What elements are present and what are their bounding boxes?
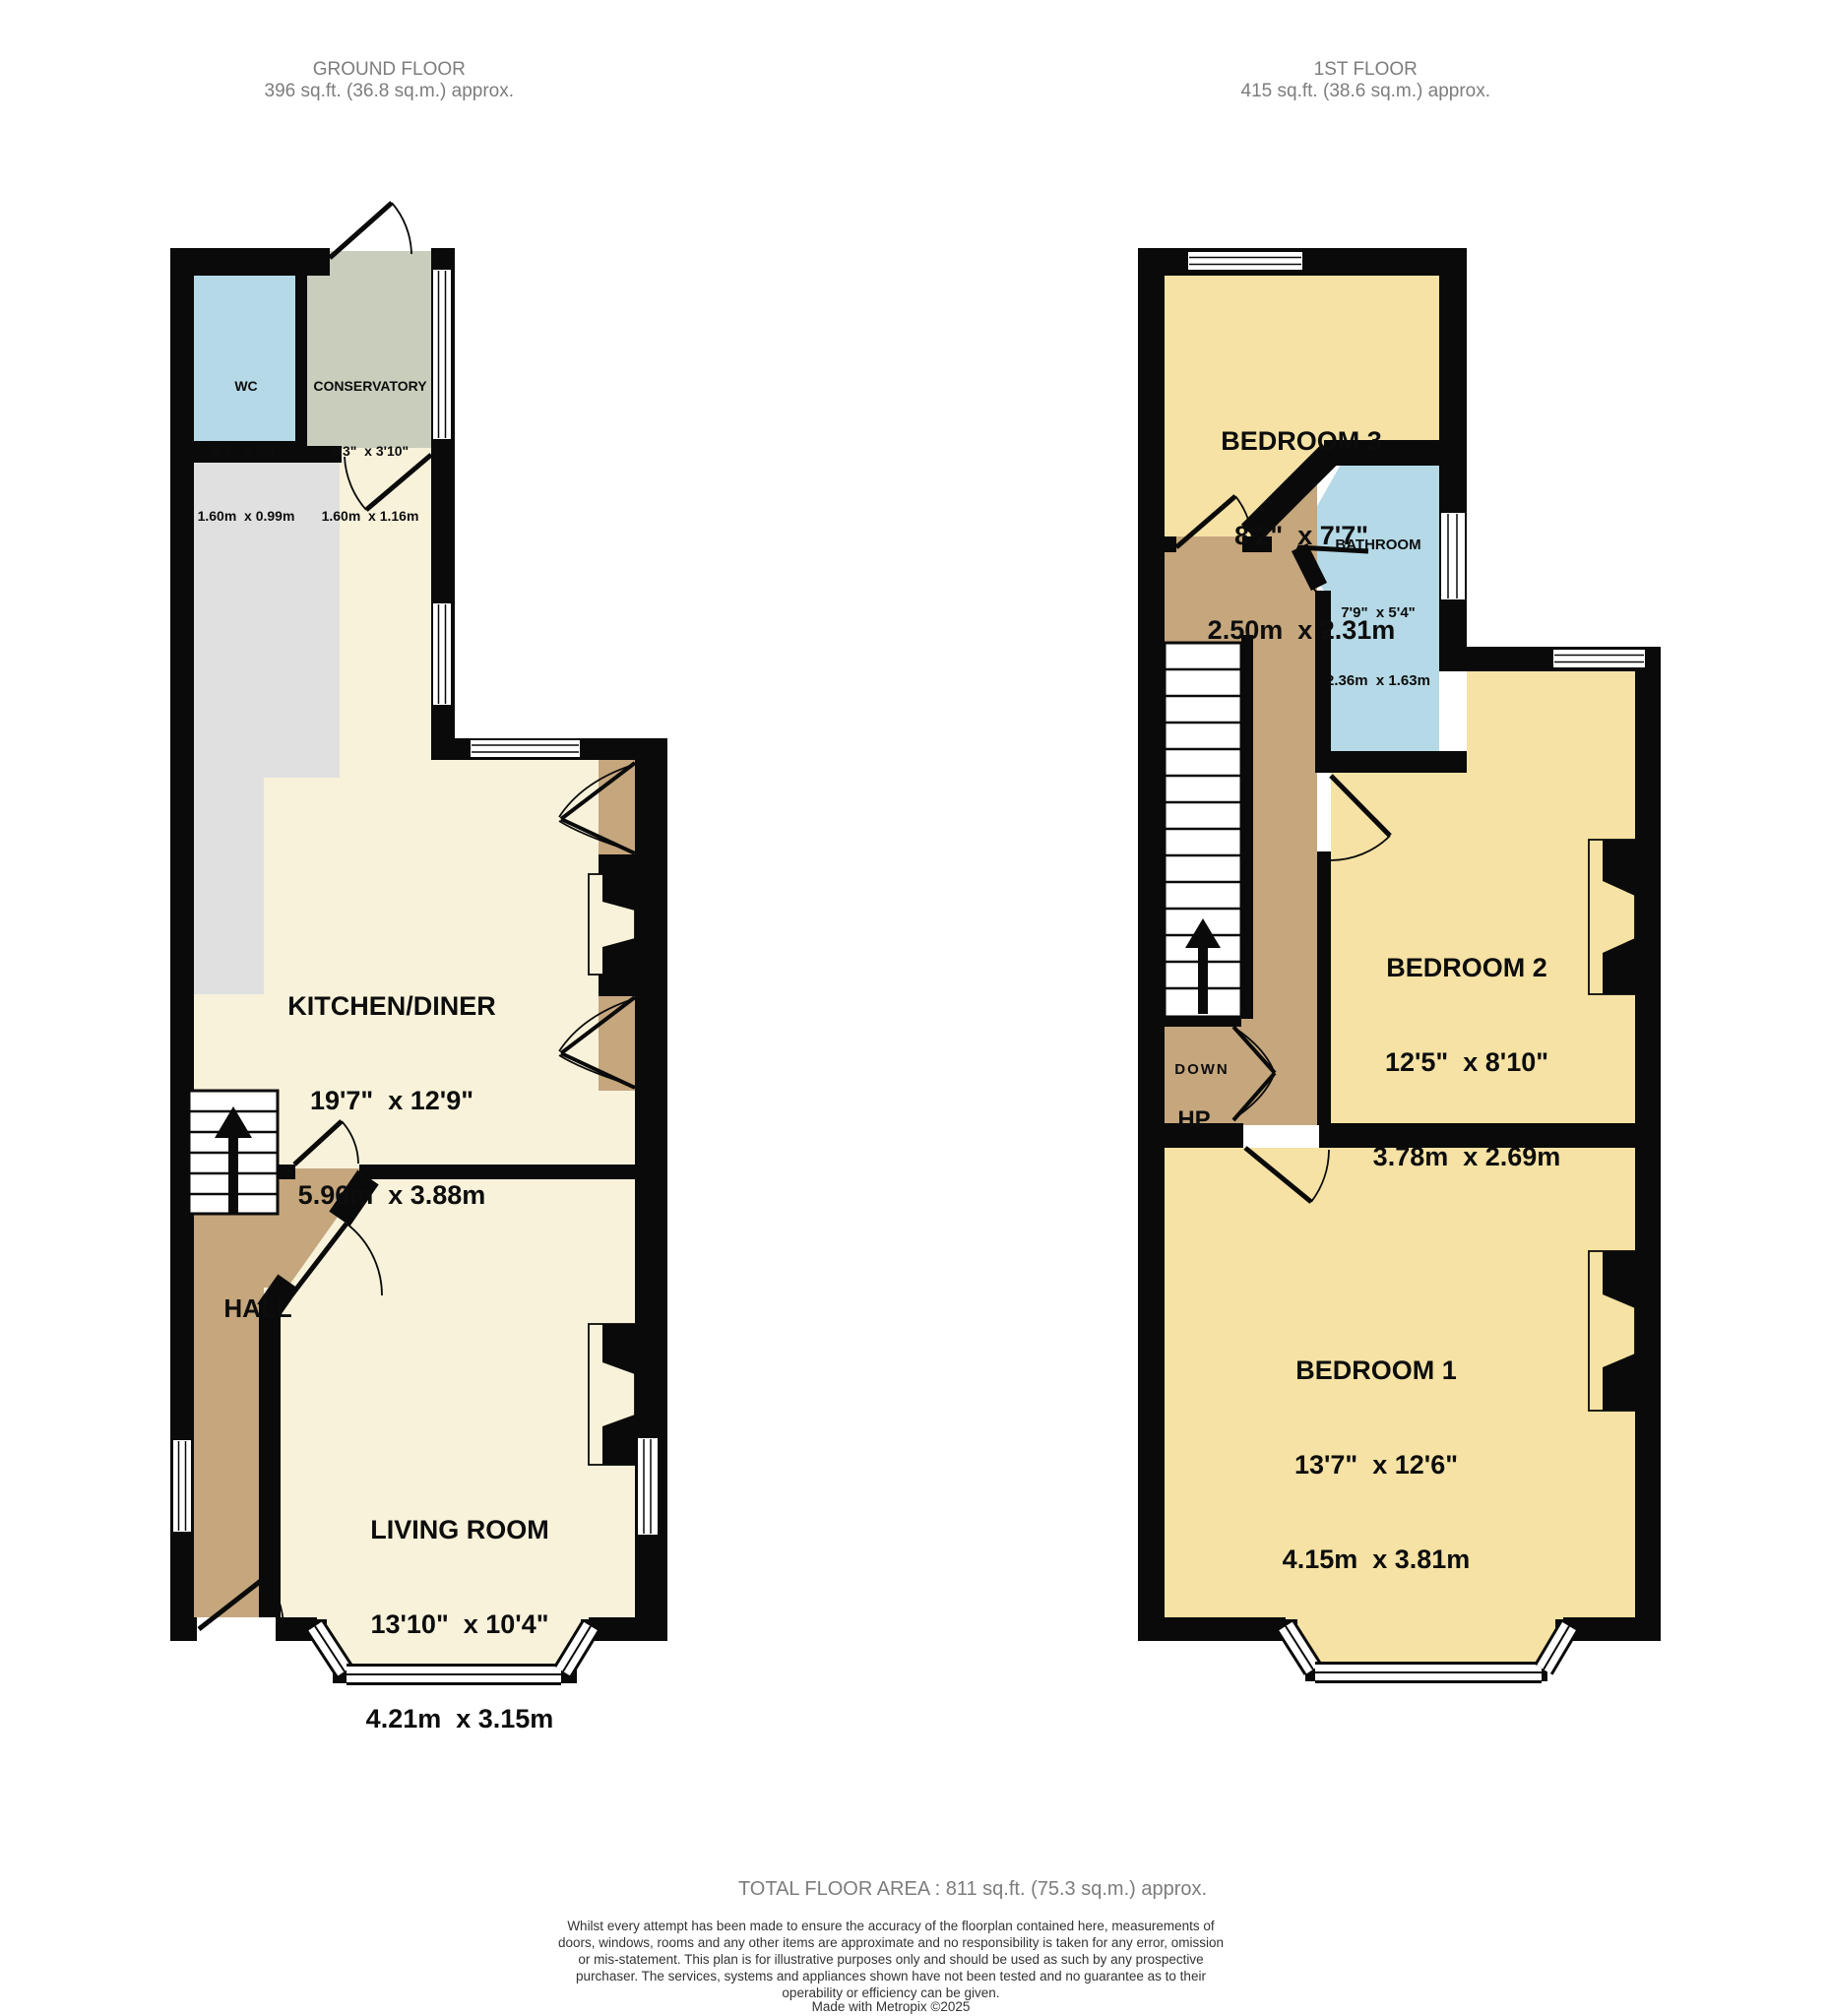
kitchen-diner-label: KITCHEN/DINER 19'7" x 12'9" 5.96m x 3.88… [287, 927, 496, 1242]
living-room-label: LIVING ROOM 13'10" x 10'4" 4.21m x 3.15m [366, 1451, 554, 1766]
kitchen-chimney-breast [589, 874, 635, 975]
first-floor-area: 415 sq.ft. (38.6 sq.m.) approx. [1241, 81, 1490, 101]
bedroom3-window [1187, 251, 1303, 271]
living-side-window [637, 1437, 659, 1536]
first-stairs [1165, 643, 1241, 1017]
bathroom-window [1440, 512, 1466, 600]
hall-label: HALL [223, 1232, 291, 1354]
kitchen-top-window [470, 739, 581, 758]
bedroom1-bay-floor [1286, 1617, 1563, 1669]
ground-floor-header: GROUND FLOOR 396 sq.ft. (36.8 sq.m.) app… [254, 37, 514, 102]
wc-label: WC 5'3" x 3'3" 1.60m x 0.99m [198, 332, 295, 548]
floorplan-page: GROUND FLOOR 396 sq.ft. (36.8 sq.m.) app… [0, 0, 1829, 2016]
conservatory-exterior-door [330, 203, 411, 258]
ground-floor-title: GROUND FLOOR [313, 59, 466, 80]
hall-side-window [172, 1439, 192, 1533]
bedroom2-chimney-breast [1589, 840, 1635, 994]
living-chimney-breast [589, 1324, 635, 1465]
conservatory-label: CONSERVATORY 5'3" x 3'10" 1.60m x 1.16m [313, 332, 426, 548]
first-floor-title: 1ST FLOOR [1314, 59, 1418, 80]
bedroom1-label: BEDROOM 1 13'7" x 12'6" 4.15m x 3.81m [1283, 1291, 1471, 1606]
total-floor-area: TOTAL FLOOR AREA : 811 sq.ft. (75.3 sq.m… [738, 1878, 1207, 1901]
disclaimer-text: Whilst every attempt has been made to en… [556, 1918, 1226, 2001]
first-floor-header: 1ST FLOOR 415 sq.ft. (38.6 sq.m.) approx… [1230, 37, 1490, 102]
bedroom2-label: BEDROOM 2 12'5" x 8'10" 3.78m x 2.69m [1373, 889, 1561, 1204]
bedroom2-window [1552, 649, 1646, 668]
ground-stairs [189, 1091, 278, 1214]
ground-floor-area: 396 sq.ft. (36.8 sq.m.) approx. [265, 81, 514, 101]
kitchen-side-window [432, 602, 452, 706]
bathroom-label: BATHROOM 7'9" x 5'4" 2.36m x 1.63m [1326, 488, 1430, 715]
metropix-credit: Made with Metropix ©2025 [812, 1999, 971, 2014]
conservatory-window [432, 269, 452, 440]
hp-label: HP [1177, 1051, 1210, 1162]
bedroom1-chimney-breast [1589, 1251, 1635, 1411]
